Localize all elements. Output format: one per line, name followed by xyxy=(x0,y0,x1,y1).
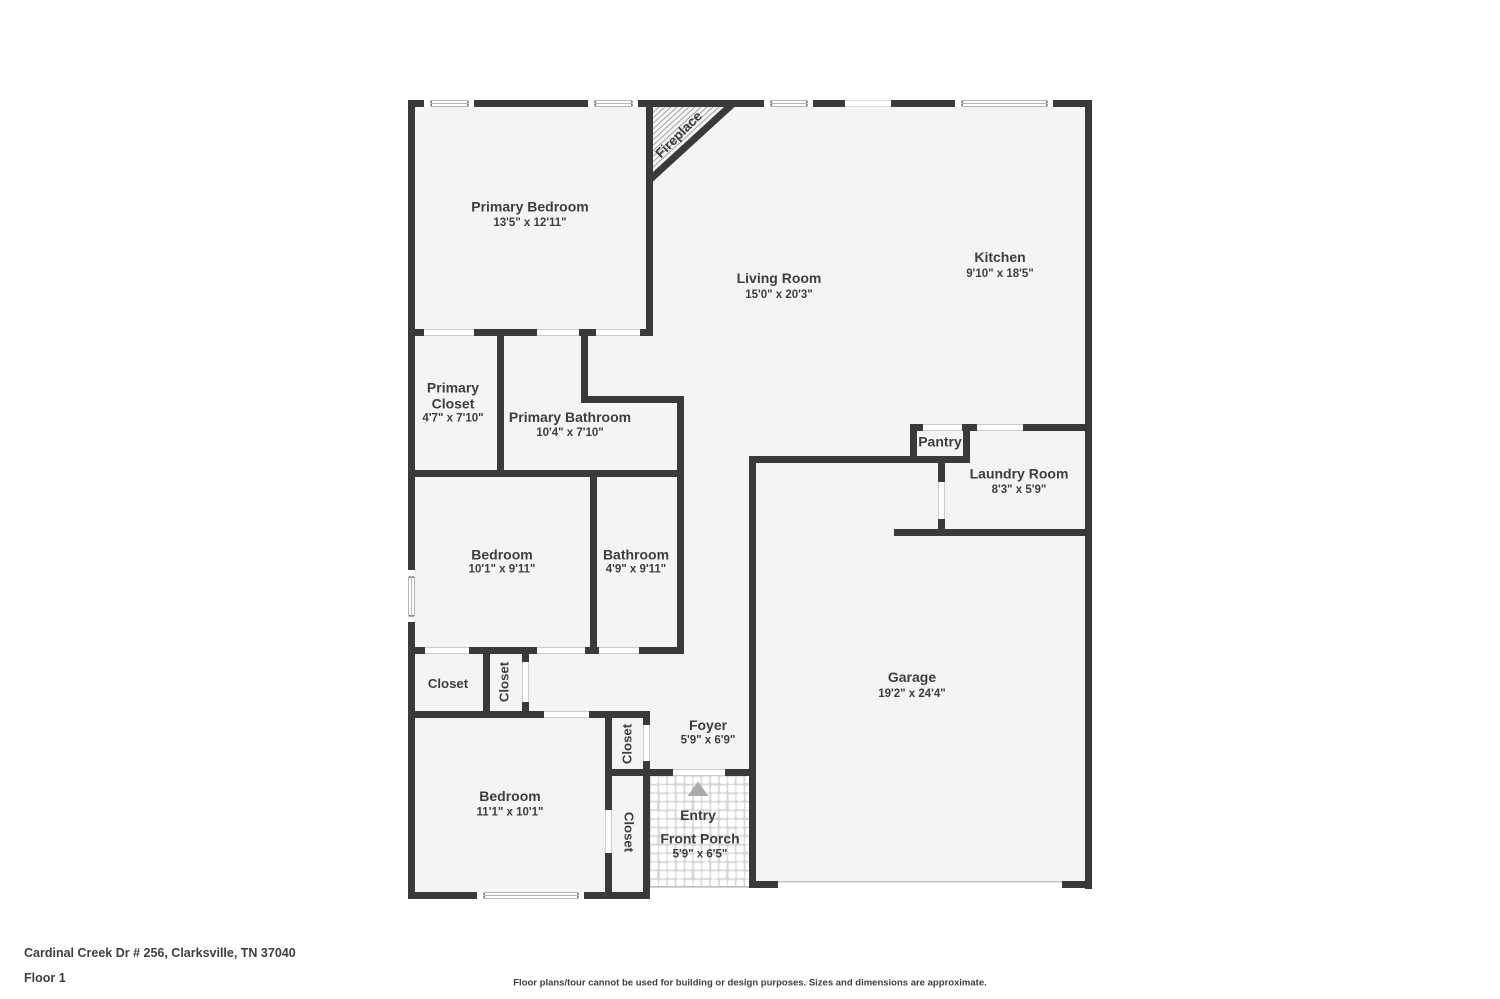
svg-text:4'7" x 7'10": 4'7" x 7'10" xyxy=(422,413,483,425)
svg-text:Primary Bathroom: Primary Bathroom xyxy=(509,409,631,425)
svg-text:Bedroom: Bedroom xyxy=(471,547,532,563)
svg-text:10'4" x 7'10": 10'4" x 7'10" xyxy=(536,427,604,439)
svg-text:11'1" x 10'1": 11'1" x 10'1" xyxy=(477,807,544,819)
svg-text:Garage: Garage xyxy=(888,669,936,685)
svg-text:Closet: Closet xyxy=(497,661,512,702)
svg-text:Front Porch: Front Porch xyxy=(660,831,739,847)
svg-text:13'5" x 12'11": 13'5" x 12'11" xyxy=(493,217,566,229)
svg-text:5'9" x 6'9": 5'9" x 6'9" xyxy=(681,735,736,747)
svg-text:Closet: Closet xyxy=(428,676,469,691)
svg-text:Pantry: Pantry xyxy=(918,434,962,450)
svg-text:Closet: Closet xyxy=(432,396,475,412)
svg-text:Entry: Entry xyxy=(680,807,716,823)
svg-text:Bathroom: Bathroom xyxy=(603,547,669,563)
svg-text:Floor plans/tour cannot be use: Floor plans/tour cannot be used for buil… xyxy=(513,978,987,989)
svg-text:9'10" x 18'5": 9'10" x 18'5" xyxy=(966,268,1034,280)
svg-text:Laundry Room: Laundry Room xyxy=(970,466,1069,482)
svg-text:Primary: Primary xyxy=(427,380,479,396)
svg-text:Cardinal Creek Dr # 256, Clark: Cardinal Creek Dr # 256, Clarksville, TN… xyxy=(24,946,296,960)
svg-text:5'9" x 6'5": 5'9" x 6'5" xyxy=(673,849,728,861)
svg-text:Closet: Closet xyxy=(622,812,637,853)
svg-text:Closet: Closet xyxy=(620,723,635,764)
svg-text:Kitchen: Kitchen xyxy=(974,249,1025,265)
svg-text:15'0" x 20'3": 15'0" x 20'3" xyxy=(745,289,813,301)
svg-text:Living Room: Living Room xyxy=(737,270,822,286)
svg-text:19'2" x 24'4": 19'2" x 24'4" xyxy=(878,688,946,700)
svg-text:Primary Bedroom: Primary Bedroom xyxy=(471,199,588,215)
svg-text:10'1" x 9'11": 10'1" x 9'11" xyxy=(469,564,536,576)
svg-text:4'9" x 9'11": 4'9" x 9'11" xyxy=(606,564,667,576)
svg-text:8'3" x 5'9": 8'3" x 5'9" xyxy=(992,484,1047,496)
svg-text:Bedroom: Bedroom xyxy=(479,788,540,804)
svg-text:Floor 1: Floor 1 xyxy=(24,971,66,985)
svg-text:Foyer: Foyer xyxy=(689,717,728,733)
